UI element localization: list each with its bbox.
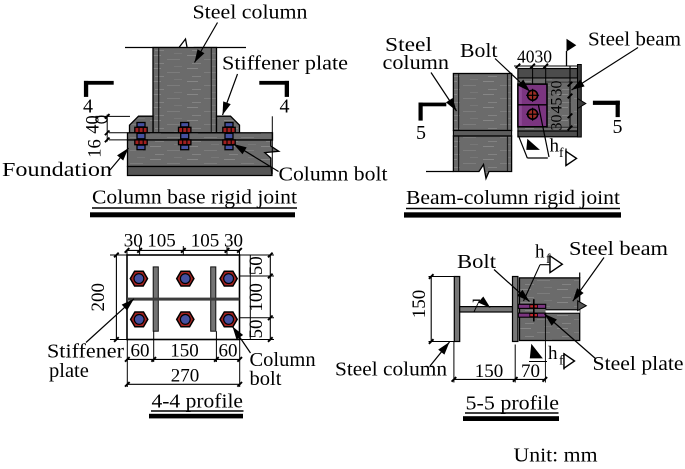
svg-text:4: 4 (83, 96, 93, 118)
svg-text:f: f (559, 353, 564, 368)
svg-text:4: 4 (280, 96, 290, 118)
svg-text:30: 30 (535, 47, 553, 67)
svg-text:60: 60 (219, 341, 238, 362)
svg-text:Steel column: Steel column (335, 359, 447, 381)
svg-text:Bolt: Bolt (460, 40, 498, 62)
svg-text:7: 7 (472, 296, 481, 316)
svg-text:column: column (383, 52, 450, 74)
svg-text:105: 105 (147, 231, 176, 252)
svg-text:30: 30 (549, 81, 566, 97)
svg-text:Column bolt: Column bolt (279, 164, 388, 186)
svg-text:16: 16 (86, 139, 106, 158)
svg-text:4-4 profile: 4-4 profile (152, 391, 244, 413)
svg-text:270: 270 (171, 366, 200, 387)
svg-text:Bolt: Bolt (457, 251, 497, 273)
svg-text:Steel column: Steel column (193, 2, 308, 24)
svg-text:40: 40 (84, 115, 104, 134)
svg-text:100: 100 (246, 283, 267, 312)
svg-text:Beam-column rigid joint: Beam-column rigid joint (406, 187, 620, 209)
svg-text:Unit: mm: Unit: mm (514, 446, 598, 467)
svg-text:30: 30 (224, 231, 243, 252)
svg-text:Steel plate: Steel plate (593, 353, 684, 375)
svg-text:Steel beam: Steel beam (569, 238, 668, 260)
svg-text:h: h (550, 136, 560, 157)
svg-text:150: 150 (409, 290, 430, 319)
svg-text:Steel beam: Steel beam (588, 29, 681, 51)
svg-text:50: 50 (246, 256, 267, 275)
svg-text:70: 70 (521, 361, 540, 382)
svg-text:plate: plate (49, 360, 89, 382)
svg-text:30: 30 (124, 231, 143, 252)
svg-text:50: 50 (246, 320, 267, 339)
svg-text:Foundation: Foundation (2, 159, 112, 181)
svg-text:h: h (548, 343, 558, 364)
svg-text:40: 40 (517, 47, 535, 67)
svg-text:5-5 profile: 5-5 profile (466, 393, 560, 415)
svg-text:h: h (535, 242, 545, 263)
svg-text:60: 60 (131, 341, 150, 362)
svg-text:105: 105 (191, 231, 220, 252)
svg-text:bolt: bolt (250, 368, 282, 390)
svg-text:30: 30 (549, 115, 566, 131)
svg-text:Stiffener plate: Stiffener plate (222, 53, 348, 75)
svg-text:Column base rigid joint: Column base rigid joint (92, 187, 297, 209)
svg-text:45: 45 (549, 98, 566, 114)
svg-text:5: 5 (613, 116, 623, 138)
svg-text:150: 150 (170, 341, 199, 362)
svg-text:f: f (559, 145, 564, 160)
svg-text:150: 150 (475, 361, 504, 382)
svg-text:200: 200 (88, 283, 109, 312)
svg-text:5: 5 (416, 122, 426, 144)
